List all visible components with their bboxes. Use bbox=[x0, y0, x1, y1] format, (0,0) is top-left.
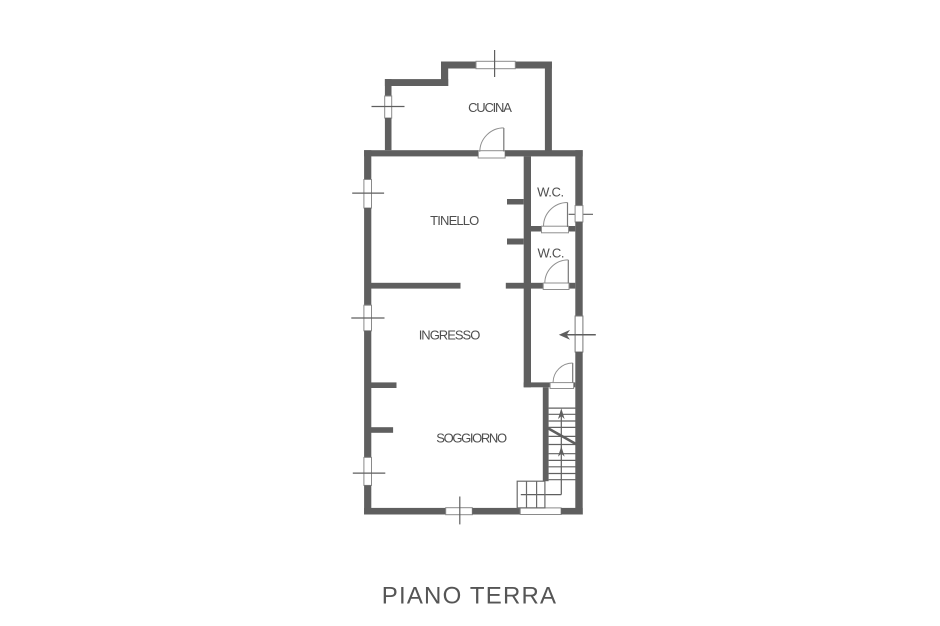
svg-text:CUCINA: CUCINA bbox=[468, 100, 512, 115]
svg-text:PIANO TERRA: PIANO TERRA bbox=[382, 583, 557, 610]
svg-text:W.C.: W.C. bbox=[538, 245, 565, 260]
svg-text:SOGGIORNO: SOGGIORNO bbox=[436, 431, 507, 446]
svg-text:TINELLO: TINELLO bbox=[430, 213, 479, 228]
svg-text:INGRESSO: INGRESSO bbox=[419, 328, 481, 343]
svg-text:W.C.: W.C. bbox=[537, 185, 564, 200]
